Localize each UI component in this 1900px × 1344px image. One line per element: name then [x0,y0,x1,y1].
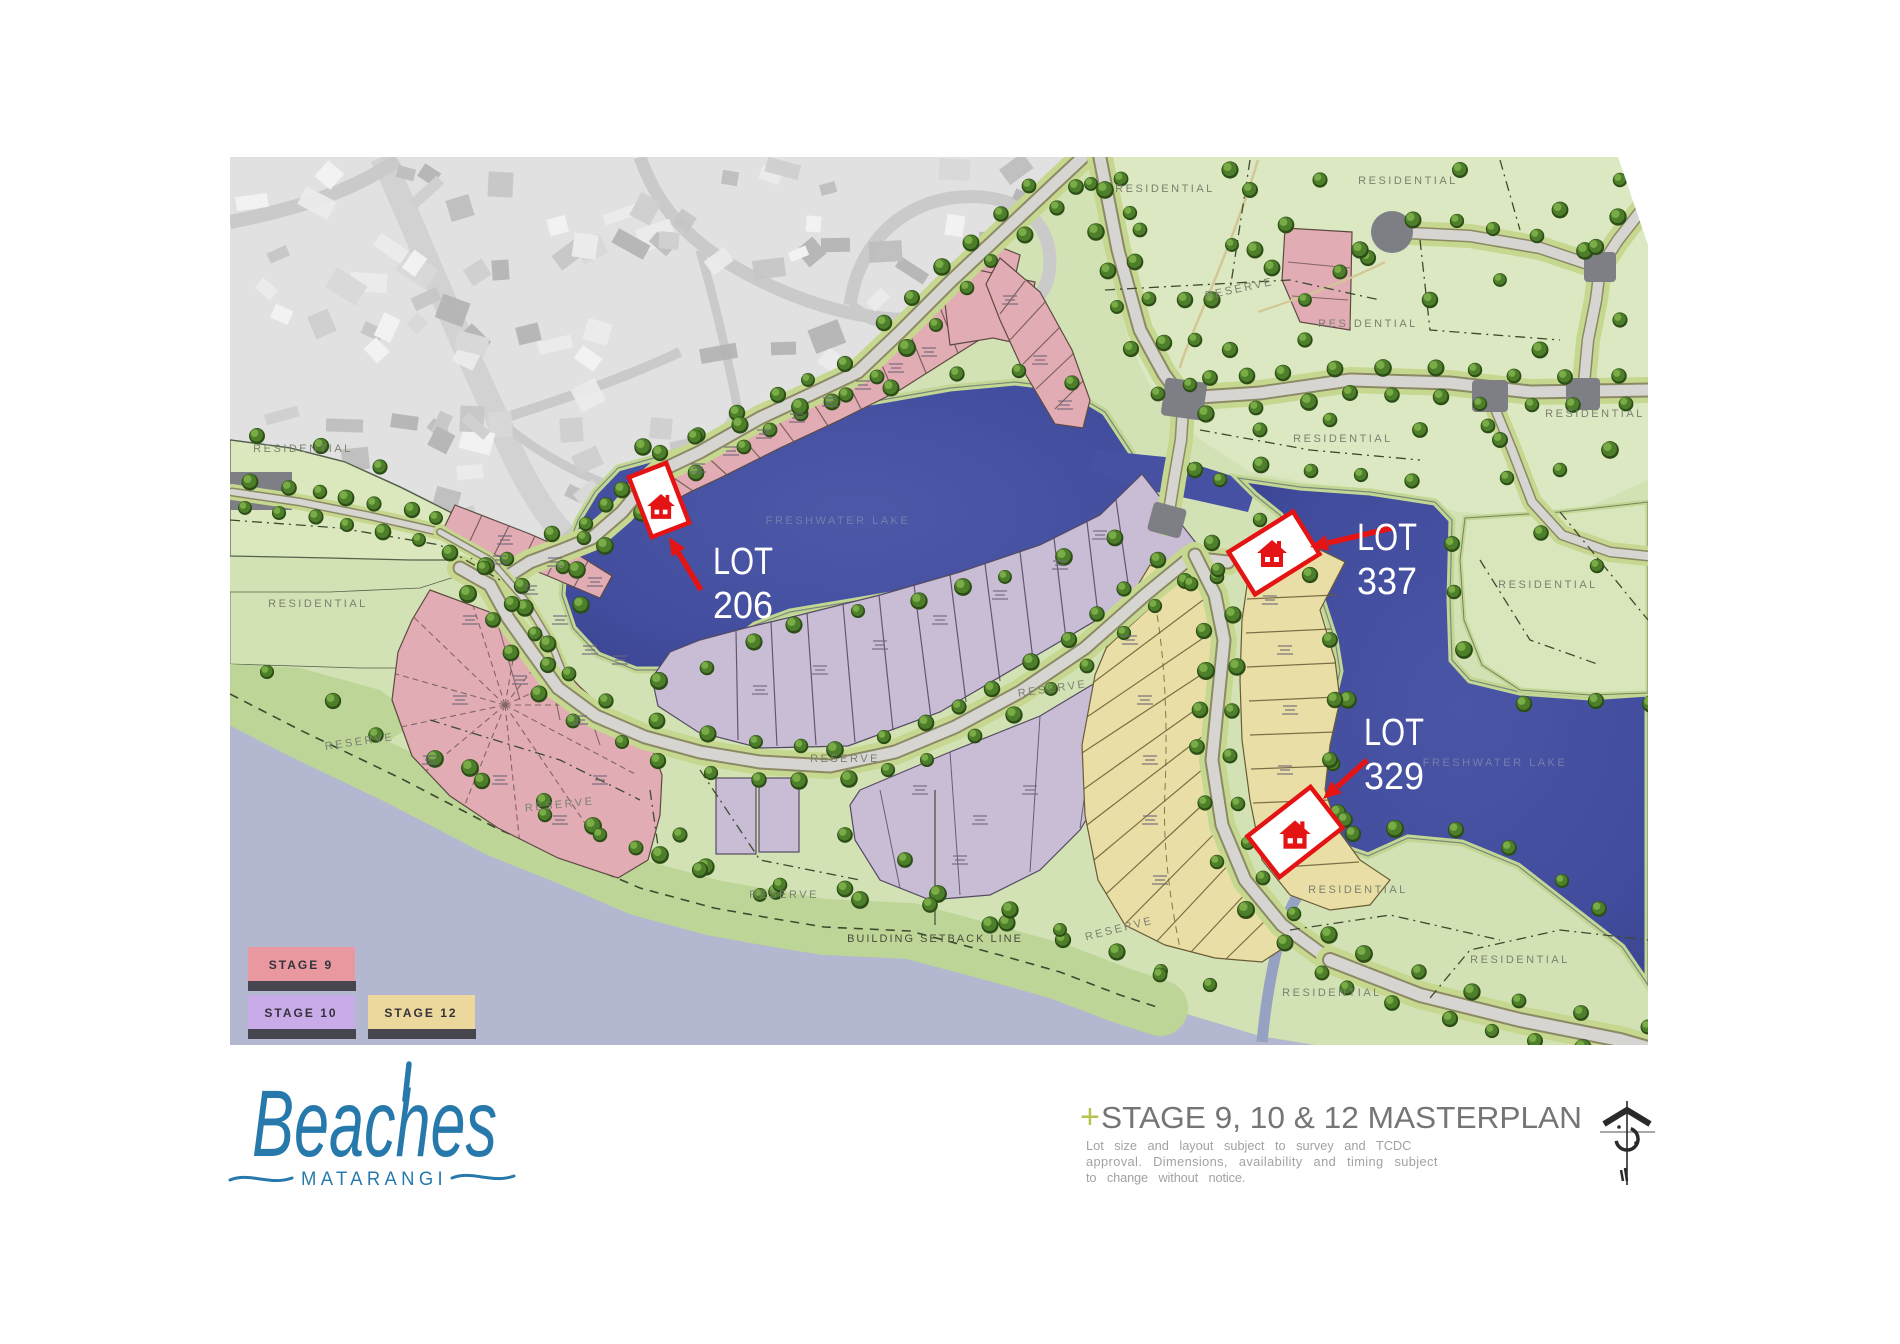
svg-text:RESIDENTIAL: RESIDENTIAL [1308,884,1408,896]
svg-text:STAGE 10: STAGE 10 [264,1006,337,1020]
svg-text:RESERVE: RESERVE [749,889,819,901]
svg-text:FRESHWATER LAKE: FRESHWATER LAKE [766,515,910,527]
svg-text:Lot size and layout subject to: Lot size and layout subject to survey an… [1086,1138,1412,1153]
svg-text:STAGE 9: STAGE 9 [269,958,333,972]
svg-text:329: 329 [1364,756,1424,798]
svg-text:BUILDING SETBACK LINE: BUILDING SETBACK LINE [847,933,1023,945]
svg-text:to change without notice.: to change without notice. [1086,1170,1246,1185]
svg-text:approval. Dimensions, availabi: approval. Dimensions, availability and t… [1086,1154,1438,1169]
svg-text:RESIDENTIAL: RESIDENTIAL [1498,579,1598,591]
svg-text:MATARANGI: MATARANGI [301,1169,447,1190]
svg-text:LOT: LOT [1364,712,1424,754]
svg-text:RESIDENTIAL: RESIDENTIAL [1282,987,1382,999]
svg-text:337: 337 [1357,561,1417,603]
svg-text:RESIDENTIAL: RESIDENTIAL [1115,183,1215,195]
svg-text:RESIDENTIAL: RESIDENTIAL [1358,175,1458,187]
svg-text:RESIDENTIAL: RESIDENTIAL [253,443,353,455]
svg-text:FRESHWATER LAKE: FRESHWATER LAKE [1423,757,1567,769]
svg-text:STAGE 12: STAGE 12 [384,1006,457,1020]
svg-text:RESIDENTIAL: RESIDENTIAL [1318,318,1418,330]
svg-text:STAGE 9, 10 & 12 MASTERPLAN: STAGE 9, 10 & 12 MASTERPLAN [1101,1100,1582,1135]
svg-text:RESIDENTIAL: RESIDENTIAL [268,598,368,610]
svg-text:LOT: LOT [713,541,773,583]
svg-text:RESIDENTIAL: RESIDENTIAL [1470,954,1570,966]
svg-text:206: 206 [713,585,773,627]
svg-text:+: + [1080,1098,1100,1136]
svg-text:LOT: LOT [1357,517,1417,559]
svg-text:RESIDENTIAL: RESIDENTIAL [1293,433,1393,445]
svg-text:Beaches: Beaches [252,1071,497,1177]
svg-text:RESIDENTIAL: RESIDENTIAL [1545,408,1645,420]
svg-text:RESERVE: RESERVE [810,753,880,765]
